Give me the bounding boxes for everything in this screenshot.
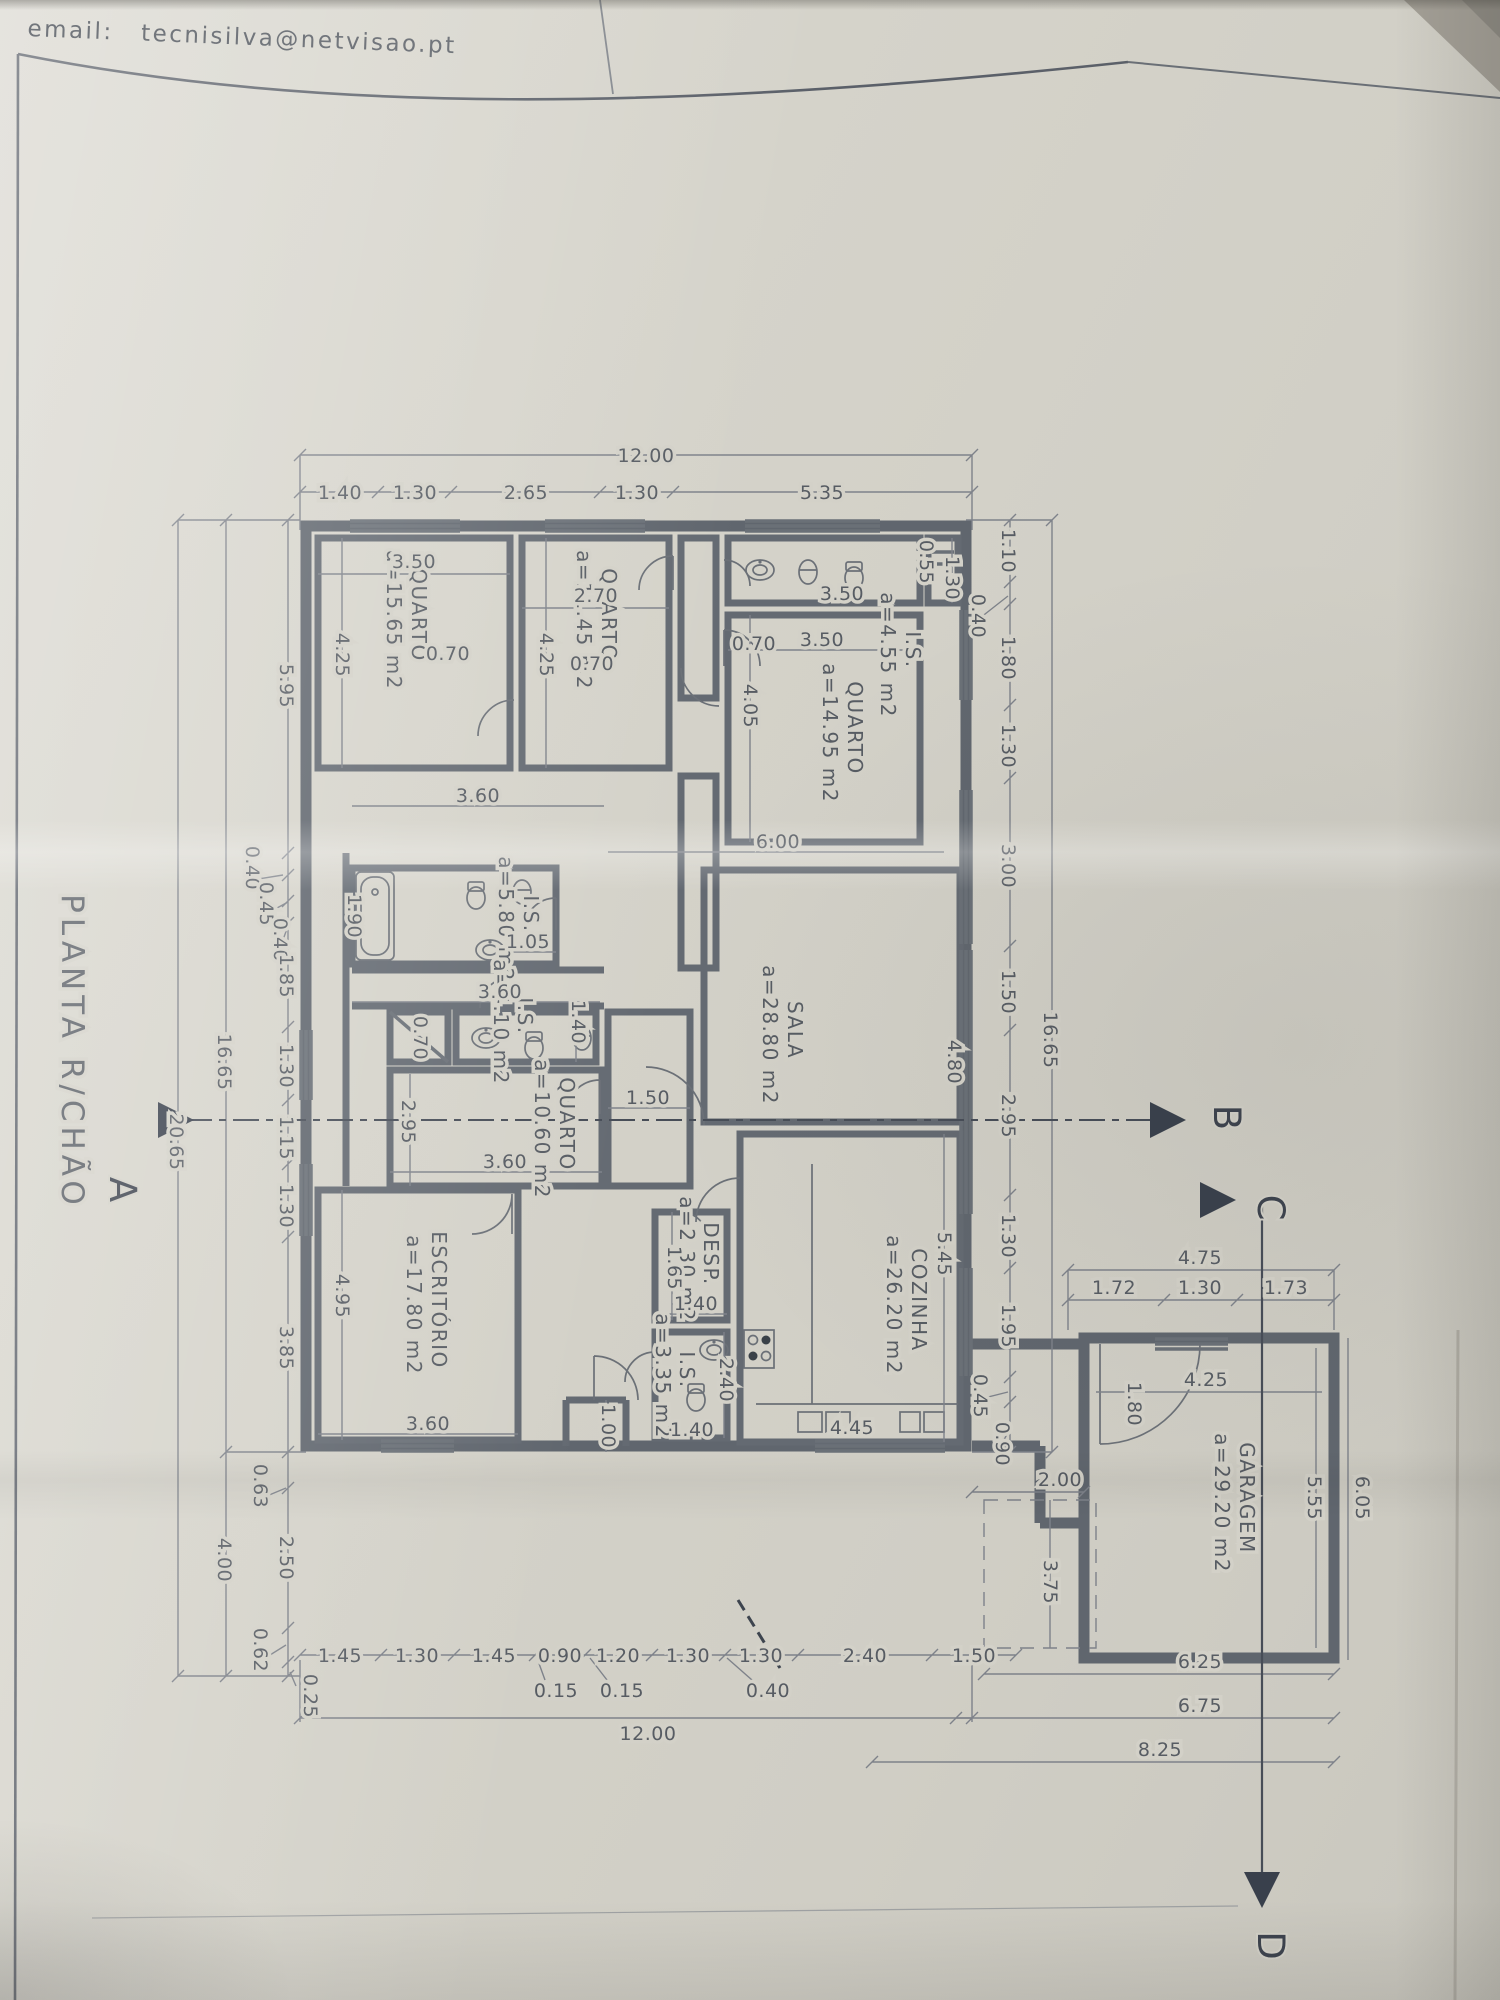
room-name: GARAGEM: [1235, 1442, 1259, 1554]
bidet-icon: [799, 560, 817, 584]
dim-label: 1.30: [666, 1645, 710, 1667]
dim-label: 2.95: [397, 1100, 419, 1144]
dim-label: 5.95: [275, 664, 297, 708]
dim-label: 5.35: [800, 482, 844, 504]
sink-icon: [798, 1412, 822, 1432]
dim-label: 4.25: [1184, 1369, 1228, 1391]
dim-label: 4.25: [331, 633, 353, 677]
dim-label: 1.40: [318, 482, 362, 504]
dim-label: 0.15: [600, 1680, 644, 1702]
room-name: SALA: [783, 1001, 807, 1059]
room-name: QUARTO: [843, 681, 867, 774]
dim-label: 1.40: [670, 1419, 714, 1441]
dim-label: 2.65: [504, 482, 548, 504]
dim-label: 6.05: [1351, 1476, 1373, 1520]
dim-label: 0.70: [570, 653, 614, 675]
dim-label: 1.50: [952, 1645, 996, 1667]
room-name: DESP.: [699, 1222, 723, 1286]
dim-label: 3.60: [406, 1413, 450, 1435]
floor-plan-drawing: PLANTA R/CHÃO: [0, 0, 1500, 2000]
room-area: a=14.95 m2: [818, 663, 842, 803]
dim-label: 1.30: [739, 1645, 783, 1667]
dim-label: 1.05: [506, 931, 550, 953]
stove-icon: [744, 1330, 774, 1368]
dim-label: 8.25: [1138, 1739, 1182, 1761]
dim-label: 1.50: [626, 1087, 670, 1109]
page-title: PLANTA R/CHÃO: [54, 894, 90, 1210]
dim-label: 1.80: [997, 636, 1019, 680]
dim-label: 16.65: [213, 1034, 235, 1091]
dim-label: 1.90: [343, 894, 365, 938]
dim-label: 0.45: [969, 1374, 991, 1418]
room-name: I.S.: [901, 631, 925, 668]
dim-label: 4.75: [1178, 1247, 1222, 1269]
dim-label: 3.60: [456, 785, 500, 807]
blueprint-photo: email: tecnisilva@netvisao.pt PLANTA R/C…: [0, 0, 1500, 2000]
dim-label: 1.85: [275, 954, 297, 998]
dim-label: 16.65: [1039, 1012, 1061, 1069]
dim-label: 4.25: [535, 633, 557, 677]
dim-label: 4.45: [830, 1417, 874, 1439]
dim-label: 12.00: [618, 445, 675, 467]
dim-label: 6.75: [1178, 1695, 1222, 1717]
dim-label: 20.65: [165, 1114, 187, 1171]
dim-label: 6.25: [1178, 1651, 1222, 1673]
dim-label: 1.73: [1264, 1277, 1308, 1299]
dim-label: 1.10: [997, 529, 1019, 573]
dim-label: 2.00: [1038, 1469, 1082, 1491]
room-name: QUARTO: [555, 1077, 579, 1170]
dim-label: 1.95: [997, 1304, 1019, 1348]
dim-label: 0.70: [409, 1016, 431, 1060]
dim-label: 1.30: [941, 556, 963, 600]
dim-label: 0.15: [534, 1680, 578, 1702]
dim-label: 3.85: [275, 1326, 297, 1370]
dim-label: 1.30: [393, 482, 437, 504]
dim-label: 2.70: [574, 585, 618, 607]
room-area: a=4.55 m2: [876, 592, 900, 718]
dim-label: 4.05: [739, 684, 761, 728]
dim-label: 3.50: [800, 629, 844, 651]
dim-label: 0.62: [249, 1628, 271, 1672]
dim-label: 4.00: [213, 1538, 235, 1582]
section-label-c: C: [1249, 1195, 1292, 1222]
room-area: a=17.80 m2: [402, 1235, 426, 1375]
dim-label: 0.25: [299, 1674, 321, 1718]
dim-label: 1.30: [615, 482, 659, 504]
dim-label: 0.90: [538, 1645, 582, 1667]
dim-label: 3.00: [997, 844, 1019, 888]
dim-label: 5.45: [933, 1232, 955, 1276]
section-arrow-c: [1200, 1182, 1236, 1218]
dim-label: 4.80: [943, 1040, 965, 1084]
dim-label: 2.40: [715, 1358, 737, 1402]
dim-label: 0.40: [967, 594, 989, 638]
toilet-icon: [467, 882, 485, 909]
dim-label: 2.50: [275, 1536, 297, 1580]
section-label-b: B: [1205, 1105, 1248, 1131]
room-name: ESCRITÓRIO: [427, 1231, 451, 1369]
room-area: a=26.20 m2: [882, 1235, 906, 1375]
dim-label: 0.40: [746, 1680, 790, 1702]
dim-label: 0.55: [915, 540, 937, 584]
dim-label: 3.50: [392, 551, 436, 573]
section-label-a: A: [101, 1177, 144, 1203]
dim-label: 3.60: [478, 981, 522, 1003]
dim-label: 3.75: [1039, 1560, 1061, 1604]
dim-label: 2.40: [843, 1645, 887, 1667]
dim-label: 6.00: [756, 831, 800, 853]
room-area: a=4.10 m2: [489, 959, 513, 1085]
dim-label: 1.65: [663, 1246, 685, 1290]
dim-label: 3.50: [820, 583, 864, 605]
dim-label: 1.40: [674, 1293, 718, 1315]
dim-label: 1.30: [1178, 1277, 1222, 1299]
toilet-icon: [525, 1032, 543, 1059]
dim-label: 1.72: [1092, 1277, 1136, 1299]
dim-label: 4.95: [331, 1274, 353, 1318]
section-label-d: D: [1249, 1931, 1292, 1961]
dim-label: 1.45: [318, 1645, 362, 1667]
dim-label: 1.45: [472, 1645, 516, 1667]
dim-label: 1.80: [1123, 1382, 1145, 1426]
dim-label: 1.30: [395, 1645, 439, 1667]
room-area: a=29.20 m2: [1210, 1433, 1234, 1573]
dim-label: 1.30: [275, 1044, 297, 1088]
dim-label: 1.30: [997, 724, 1019, 768]
dim-label: 0.63: [249, 1464, 271, 1508]
dim-label: 12.00: [620, 1723, 677, 1745]
dim-label: 0.70: [732, 633, 776, 655]
dim-label: 0.70: [426, 643, 470, 665]
section-arrow-d: [1244, 1872, 1280, 1908]
washbasin-icon: [746, 560, 774, 580]
dim-label: 2.95: [997, 1094, 1019, 1138]
dim-label: 0.90: [991, 1422, 1013, 1466]
dim-label: 5.55: [1303, 1476, 1325, 1520]
room-name: COZINHA: [907, 1248, 931, 1352]
room-name: QUARTO: [597, 568, 621, 661]
section-arrow-b: [1150, 1102, 1186, 1138]
room-area: a=10.60 m2: [530, 1059, 554, 1199]
dim-label: 1.50: [997, 970, 1019, 1014]
dim-label: 3.60: [483, 1151, 527, 1173]
dim-label: 1.15: [275, 1116, 297, 1160]
dim-label: 1.30: [275, 1184, 297, 1228]
dim-label: 1.20: [596, 1645, 640, 1667]
dim-label: 1.40: [567, 1000, 589, 1044]
dim-label: 1.30: [997, 1214, 1019, 1258]
room-name: I.S.: [519, 895, 543, 932]
room-area: a=28.80 m2: [758, 965, 782, 1105]
dim-label: 1.00: [597, 1404, 619, 1448]
room-name: I.S.: [675, 1351, 699, 1388]
